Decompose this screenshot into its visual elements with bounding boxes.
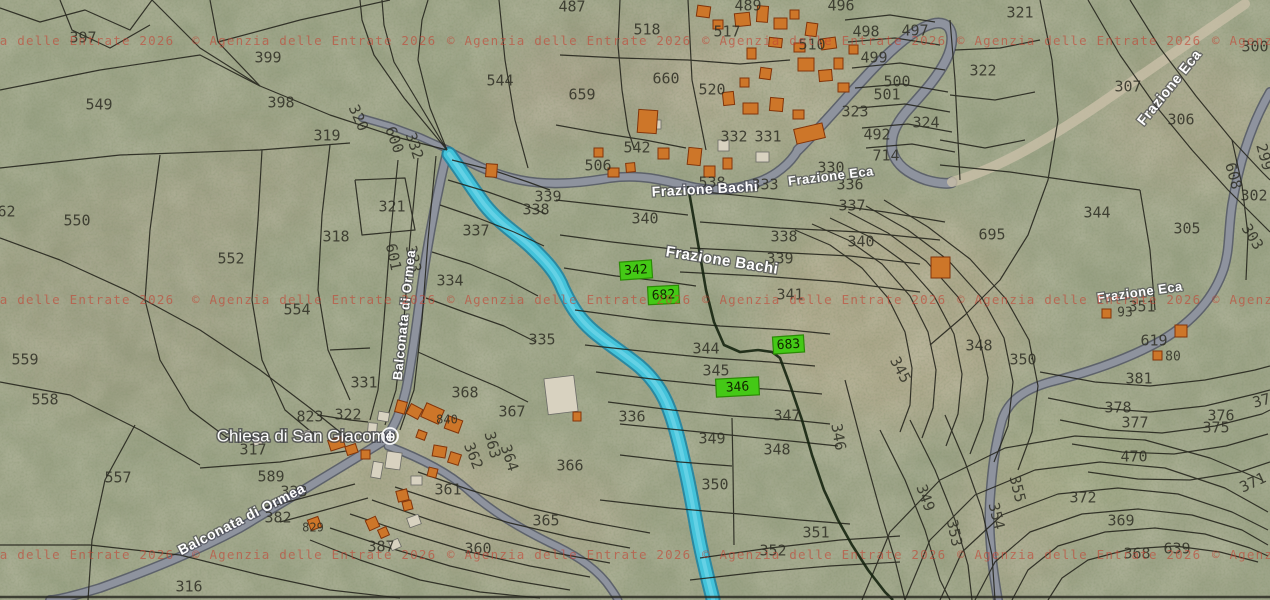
building (573, 412, 581, 421)
parcel-label: 619 (1140, 332, 1167, 350)
parcel-label: 398 (267, 94, 294, 112)
building (819, 69, 833, 81)
parcel-label: 338 (770, 228, 797, 246)
parcel-label: 550 (63, 212, 90, 230)
parcel-label: 80 (1165, 350, 1181, 365)
copyright-watermark: © Agenzia delle Entrate 2026 (192, 33, 436, 48)
building (626, 163, 636, 173)
parcel-label: 322 (969, 62, 996, 80)
parcel-label: 557 (104, 469, 131, 487)
parcel-label: 377 (1121, 414, 1148, 432)
building (798, 58, 814, 71)
building (361, 450, 370, 459)
building (747, 48, 756, 59)
building-unshaded (411, 476, 422, 485)
parcel-label: 351 (802, 524, 829, 542)
parcel-label: 366 (556, 457, 583, 475)
parcel-label: 520 (698, 81, 725, 99)
parcel-label: 368 (451, 384, 478, 402)
parcel-label: 695 (978, 226, 1005, 244)
parcel-label: 347 (773, 407, 800, 425)
parcel-label: 506 (584, 157, 611, 175)
parcel-label: 659 (568, 86, 595, 104)
building (1102, 309, 1111, 318)
building (658, 148, 669, 159)
building (427, 467, 438, 478)
building (769, 97, 783, 111)
parcel-label: 334 (436, 272, 463, 290)
parcel-label: 470 (1120, 448, 1147, 466)
building-unshaded (377, 411, 389, 422)
building (793, 110, 804, 119)
highlight-parcel[interactable]: 346 (716, 377, 760, 397)
copyright-watermark: © Agenzia delle Entrate 2026 (1212, 33, 1270, 48)
parcel-label: 372 (1069, 489, 1096, 507)
parcel-label: 829 (302, 521, 324, 535)
parcel-label: 340 (631, 210, 658, 228)
highlight-parcel-number: 342 (624, 262, 648, 279)
parcel-label: 307 (1114, 78, 1141, 96)
parcel-label: 349 (698, 430, 725, 448)
parcel-label: 321 (1006, 4, 1033, 22)
building (743, 103, 758, 114)
copyright-watermark: © Agenzia delle Entrate 2026 (447, 292, 691, 307)
copyright-watermark: © Agenzia delle Entrate 2026 (957, 547, 1201, 562)
copyright-watermark: © Agenzia delle Entrate 2026 (447, 33, 691, 48)
parcel-label: 348 (965, 337, 992, 355)
parcel-label: 375 (1202, 419, 1229, 437)
copyright-watermark: © Agenzia delle Entrate 2026 (702, 33, 946, 48)
parcel-label: 331 (754, 128, 781, 146)
parcel-label: 487 (558, 0, 585, 16)
cadastral-map: 3426826833463973995493983193206003325625… (0, 0, 1270, 600)
highlight-parcel[interactable]: 342 (619, 260, 652, 280)
highlight-parcel-number: 683 (776, 337, 800, 354)
copyright-watermark: © Agenzia delle Entrate 2026 (0, 292, 174, 307)
building (402, 500, 413, 511)
parcel-label: 319 (313, 127, 340, 145)
building (931, 257, 950, 278)
copyright-watermark: © Agenzia delle Entrate 2026 (447, 547, 691, 562)
parcel-label: 332 (720, 128, 747, 146)
parcel-label: 336 (618, 408, 645, 426)
parcel-label: 350 (701, 476, 728, 494)
copyright-watermark: © Agenzia delle Entrate 2026 (192, 292, 436, 307)
copyright-watermark: © Agenzia delle Entrate 2026 (1212, 292, 1270, 307)
parcel-label: 344 (1083, 204, 1110, 222)
parcel-label: 714 (872, 147, 899, 165)
building (432, 445, 447, 458)
place-label-group: Chiesa di San Giacomo (217, 426, 398, 445)
parcel-label: 562 (0, 203, 16, 221)
parcel-label: 316 (175, 578, 202, 596)
building-unshaded (385, 451, 402, 470)
building (774, 18, 787, 29)
parcel-label: 324 (912, 114, 939, 132)
parcel-label: 335 (528, 331, 555, 349)
parcel-label: 306 (1167, 111, 1194, 129)
building (1175, 325, 1187, 337)
place-label: Chiesa di San Giacomo (217, 426, 396, 445)
parcel-label: 544 (486, 72, 513, 90)
copyright-watermark: © Agenzia delle Entrate 2026 (192, 547, 436, 562)
parcel-label: 381 (1125, 370, 1152, 388)
copyright-watermark: © Agenzia delle Entrate 2026 (1212, 547, 1270, 562)
parcel-label: 552 (217, 250, 244, 268)
copyright-watermark: © Agenzia delle Entrate 2026 (702, 292, 946, 307)
parcel-label: 549 (85, 96, 112, 114)
building (687, 147, 702, 165)
building (486, 164, 498, 178)
parcel-label: 492 (863, 126, 890, 144)
parcel-label: 348 (763, 441, 790, 459)
building (740, 78, 749, 87)
parcel-label: 660 (652, 70, 679, 88)
parcel-label: 367 (498, 403, 525, 421)
parcel-label: 345 (702, 362, 729, 380)
parcel-label: 321 (378, 198, 405, 216)
parcel-label: 365 (532, 512, 559, 530)
building-unshaded (756, 152, 769, 162)
highlight-parcel[interactable]: 683 (772, 335, 804, 354)
highlight-parcel-number: 346 (725, 379, 749, 395)
building (696, 5, 710, 18)
copyright-watermark: © Agenzia delle Entrate 2026 (0, 547, 174, 562)
parcel-label: 501 (873, 86, 900, 104)
building (759, 67, 771, 79)
parcel-label: 340 (847, 233, 874, 251)
building (790, 10, 799, 19)
parcel-label: 840 (436, 413, 458, 427)
parcel-label: 331 (350, 374, 377, 392)
parcel-label: 542 (623, 139, 650, 157)
parcel-label: 338 (522, 201, 549, 219)
parcel-label: 337 (838, 197, 865, 215)
parcel-label: 305 (1173, 220, 1200, 238)
building (838, 83, 849, 92)
parcel-label: 823 (296, 408, 323, 426)
parcel-label: 496 (827, 0, 854, 15)
building (1153, 351, 1162, 360)
copyright-watermark: © Agenzia delle Entrate 2026 (957, 33, 1201, 48)
parcel-label: 499 (860, 49, 887, 67)
parcel-label: 399 (254, 49, 281, 67)
parcel-label: 318 (322, 228, 349, 246)
parcel-label: 344 (692, 340, 719, 358)
parcel-label: 337 (462, 222, 489, 240)
parcel-label: 350 (1009, 351, 1036, 369)
parcel-label: 302 (1240, 187, 1267, 205)
parcel-label: 369 (1107, 512, 1134, 530)
parcel-label: 558 (31, 391, 58, 409)
building (637, 109, 658, 133)
parcel-label: 322 (334, 406, 361, 424)
copyright-watermark: © Agenzia delle Entrate 2026 (957, 292, 1201, 307)
parcel-label: 361 (434, 481, 461, 499)
parcel-label: 559 (11, 351, 38, 369)
parcel-label: 93 (1117, 306, 1133, 321)
building (723, 158, 732, 169)
parcel-label: 489 (734, 0, 761, 15)
building-unshaded (544, 375, 578, 414)
building (396, 489, 409, 502)
building (834, 58, 843, 69)
parcel-label: 323 (841, 103, 868, 121)
cadastral-map-viewport[interactable]: 3426826833463973995493983193206003325625… (0, 0, 1270, 600)
copyright-watermark: © Agenzia delle Entrate 2026 (0, 33, 174, 48)
copyright-watermark: © Agenzia delle Entrate 2026 (702, 547, 946, 562)
